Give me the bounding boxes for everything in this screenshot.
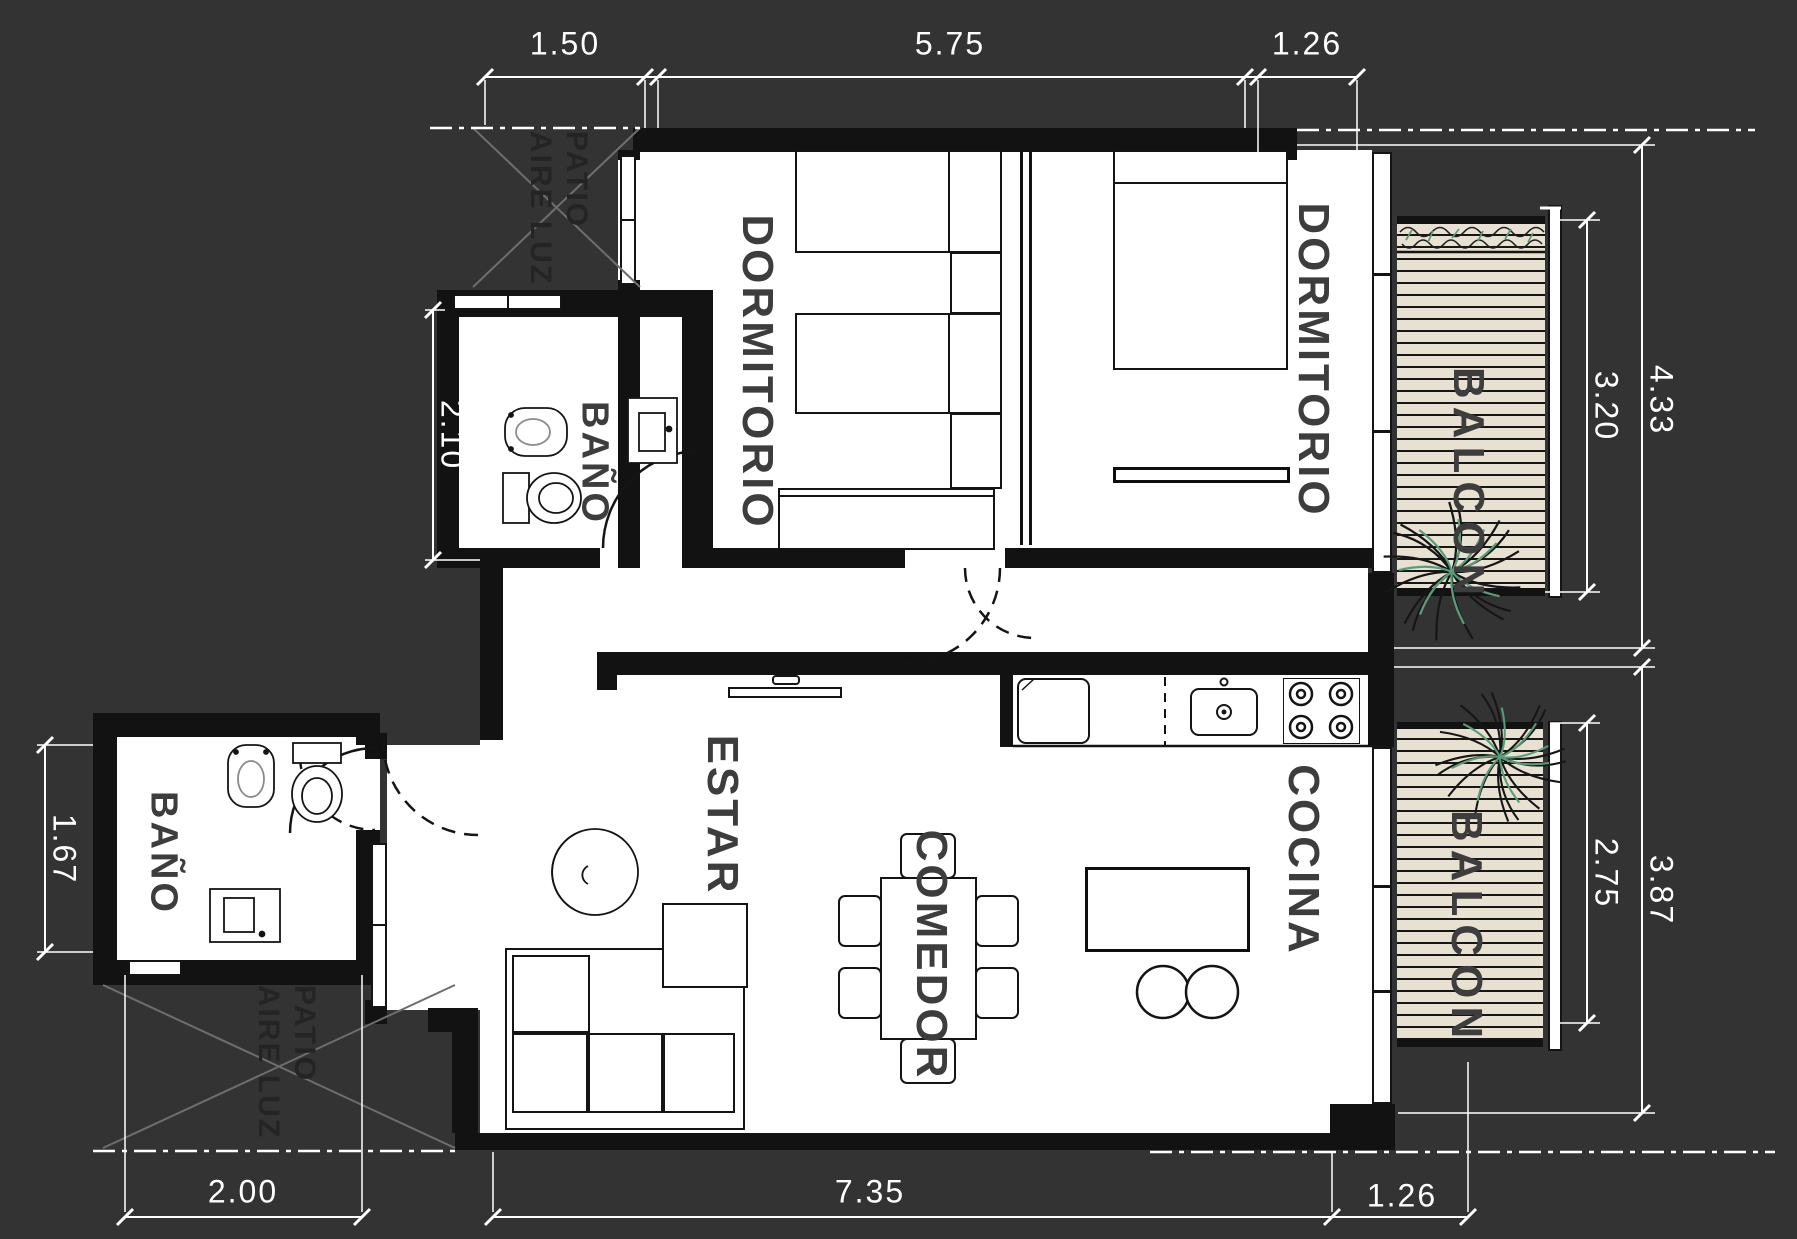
label-bedroom-right: DORMITORIO — [1288, 202, 1338, 517]
railings — [1540, 206, 1561, 1050]
planter-greenery — [1397, 228, 1545, 253]
railing-bottom — [1549, 722, 1561, 1050]
dim-top-1: 1.50 — [530, 26, 600, 63]
label-kitchen: COCINA — [1278, 764, 1328, 956]
label-patio-top: PATIO AIRE LUZ — [522, 131, 594, 285]
door-arcs — [290, 451, 1035, 835]
stool-1 — [1137, 966, 1189, 1018]
dim-bottom-3: 1.26 — [1367, 1178, 1437, 1215]
toilet-tank-icon — [503, 473, 529, 523]
dim-left-1: 2.10 — [434, 400, 471, 470]
railing-top — [1549, 206, 1561, 597]
label-balcony-top: BALCON — [1443, 367, 1493, 603]
dim-right-1: 3.20 — [1588, 371, 1625, 441]
label-bath-top: BAÑO — [573, 401, 616, 525]
dim-top-2: 5.75 — [915, 26, 985, 63]
dim-bottom-2: 7.35 — [835, 1174, 905, 1211]
dim-right-3: 2.75 — [1588, 838, 1625, 908]
label-balcony-bottom: BALCON — [1441, 810, 1491, 1046]
bath-bottom-fixtures — [210, 743, 342, 942]
label-bath-bottom: BAÑO — [142, 791, 185, 915]
dim-left-2: 1.67 — [46, 814, 83, 884]
door-arc-bath-top — [603, 451, 700, 548]
label-living: ESTAR — [697, 735, 747, 896]
floor-plan: DORMITORIO DORMITORIO BAÑO BAÑO ESTAR CO… — [0, 0, 1797, 1239]
label-patio-bottom: PATIO AIRE LUZ — [250, 985, 322, 1139]
faucet-icon — [1221, 679, 1228, 686]
toilet-tank-icon — [293, 743, 341, 763]
dim-right-4: 3.87 — [1643, 855, 1680, 925]
stool-2 — [1186, 966, 1238, 1018]
dim-right-2: 4.33 — [1643, 365, 1680, 435]
stove-burners-icon — [1290, 683, 1352, 738]
label-dining: COMEDOR — [906, 830, 956, 1081]
dim-bottom-1: 2.00 — [208, 1174, 278, 1211]
dim-top-3: 1.26 — [1272, 26, 1342, 63]
label-bedroom-left: DORMITORIO — [732, 214, 782, 529]
door-arc-bedroom-left — [905, 568, 1000, 663]
kitchen-linework — [1013, 677, 1394, 1018]
door-arc-entry — [383, 740, 478, 835]
armchair-icon — [552, 829, 638, 915]
plant-bottom-balcony — [1410, 666, 1591, 847]
